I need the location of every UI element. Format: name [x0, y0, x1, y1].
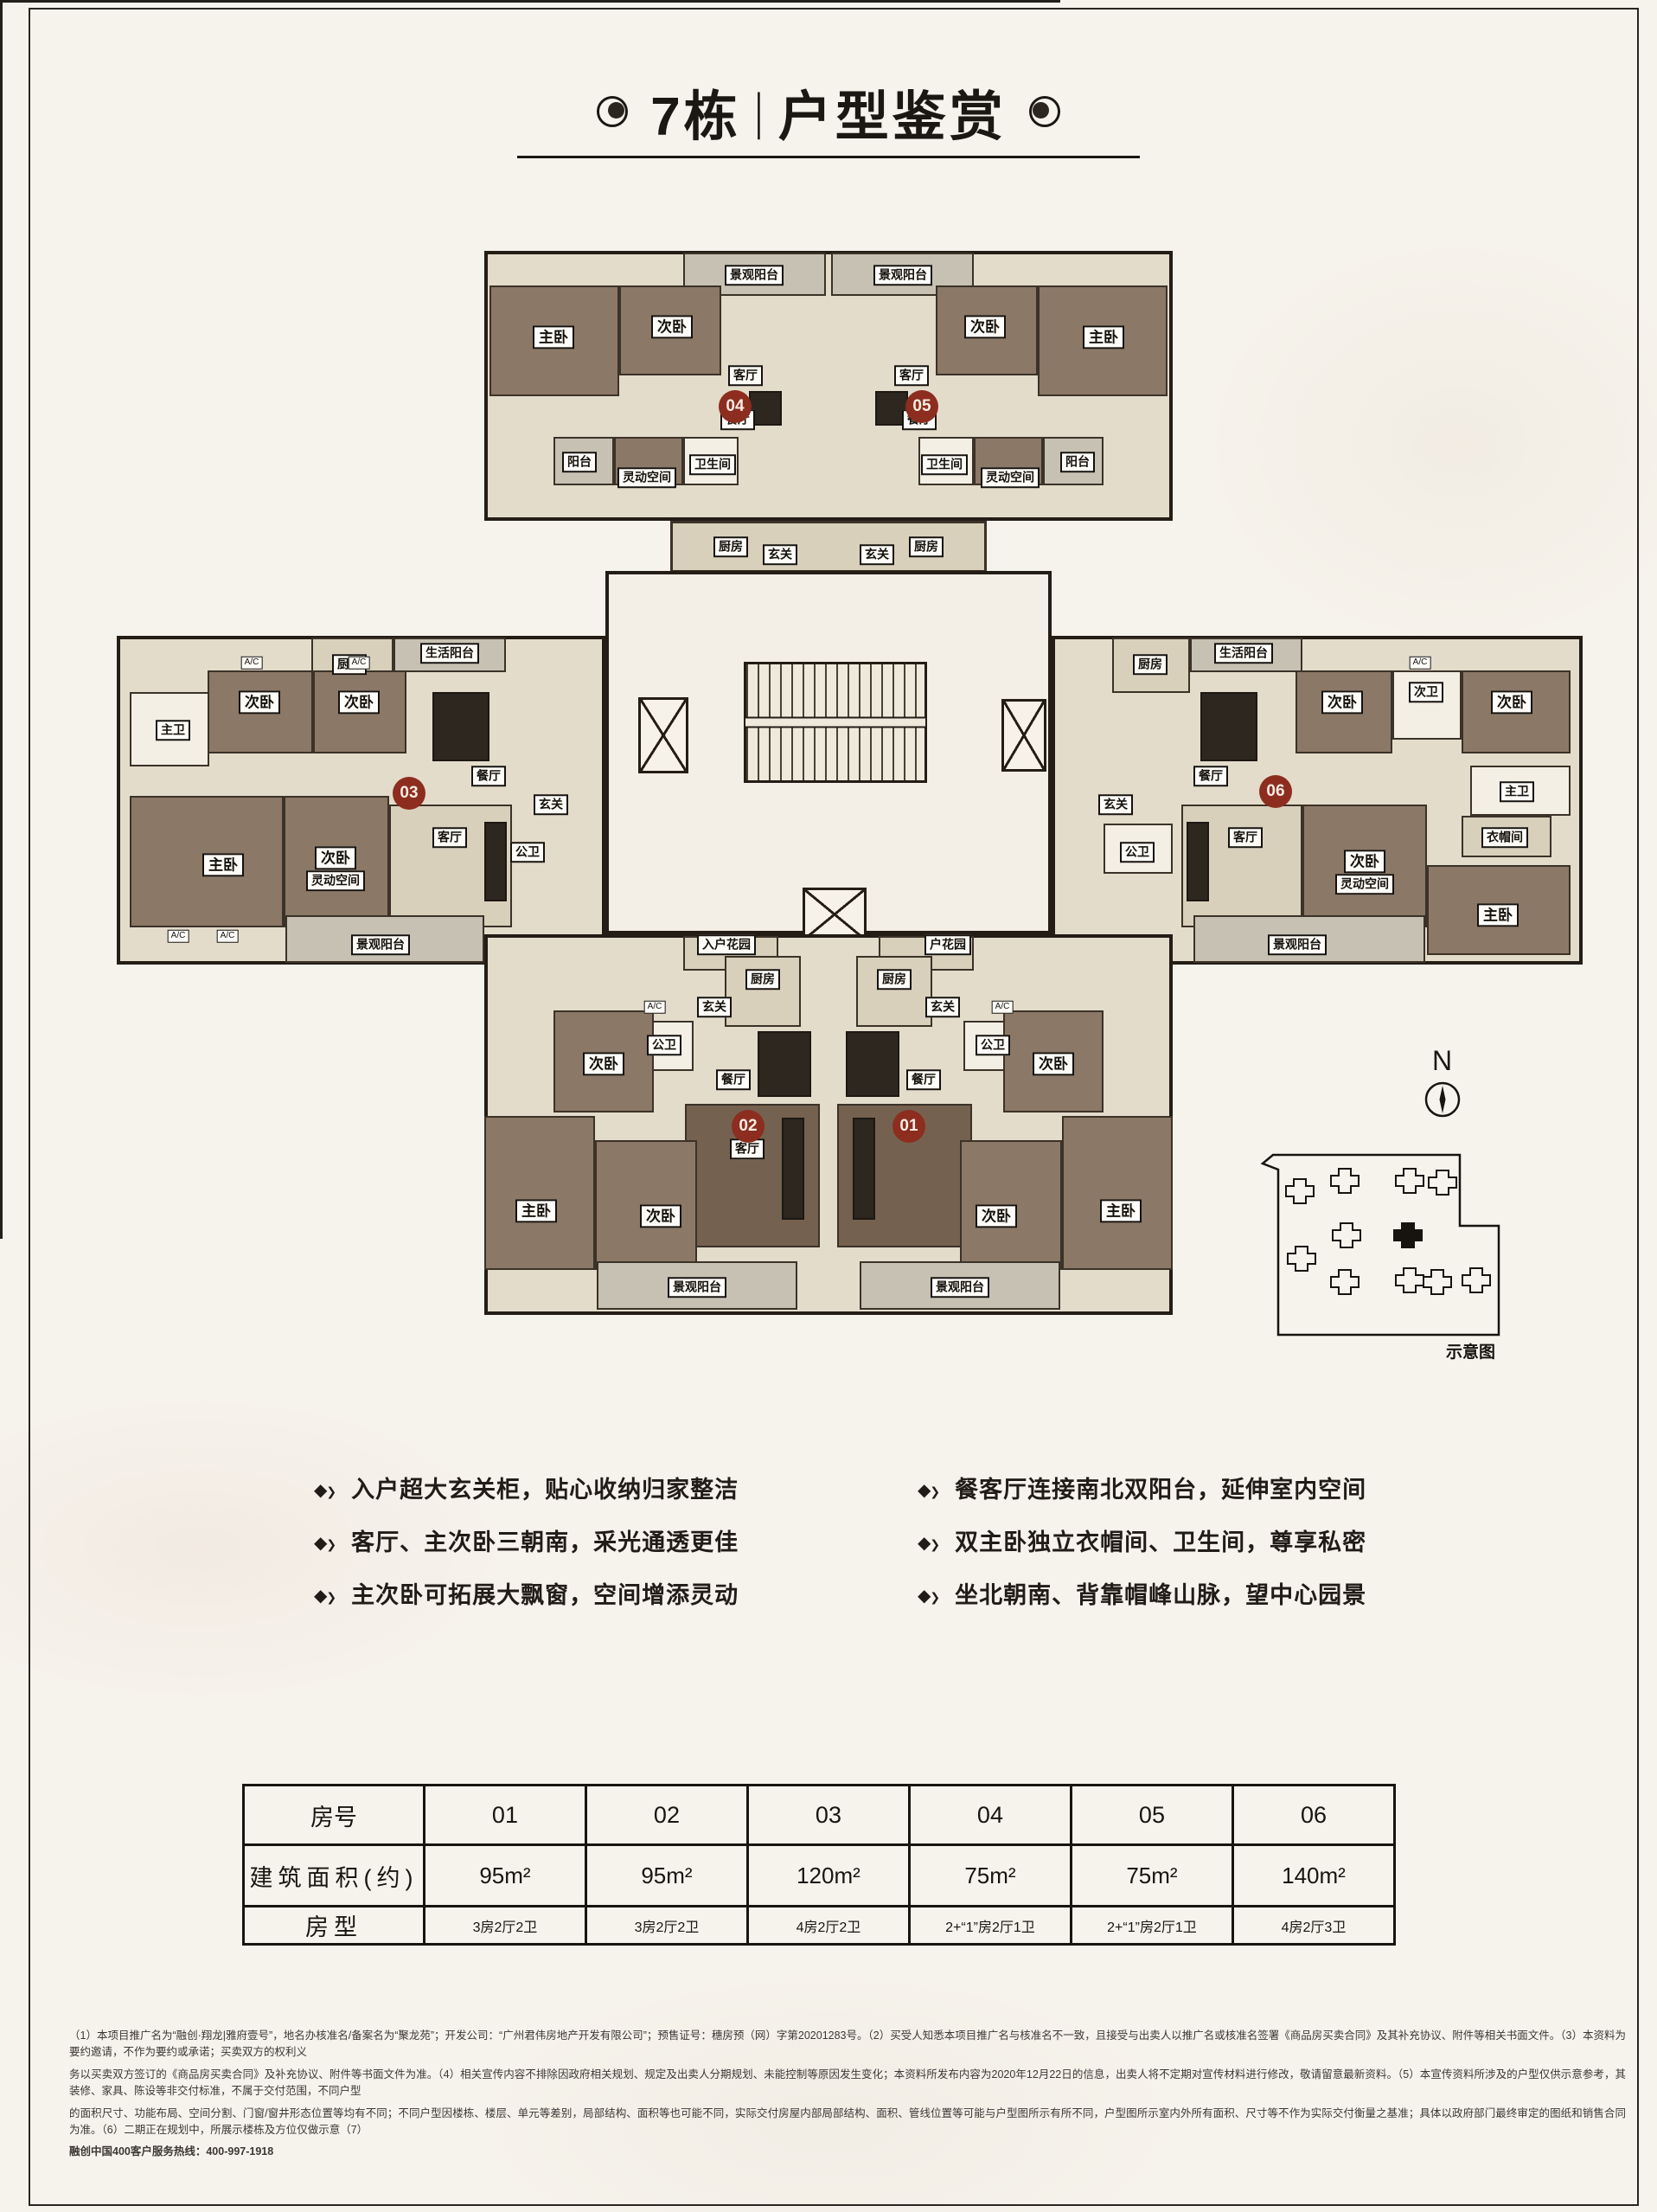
diamond-bullet-icon: [918, 1585, 941, 1606]
room-label-次卧: 次卧: [651, 315, 693, 338]
bedroom-area: [1062, 1116, 1173, 1270]
room-label-灵动空间: 灵动空间: [981, 467, 1040, 488]
room-label-主卧: 主卧: [1100, 1199, 1142, 1222]
room-label-玄关: 玄关: [763, 544, 797, 565]
room-label-卫生间: 卫生间: [921, 454, 968, 475]
room-label-客厅: 客厅: [728, 365, 763, 386]
table-cell: 95m²: [585, 1845, 747, 1907]
feature-text: 入户超大玄关柜，贴心收纳归家整洁: [351, 1471, 739, 1504]
room-label-主卧: 主卧: [515, 1199, 557, 1222]
elevator-shaft: [803, 888, 867, 941]
room-label-生活阳台: 生活阳台: [1214, 643, 1273, 664]
room-label-入户花园: 入户花园: [697, 934, 756, 955]
table-cell: 75m²: [909, 1845, 1071, 1907]
room-label-阳台: 阳台: [562, 452, 597, 472]
room-label-主卫: 主卫: [156, 720, 190, 741]
room-label-景观阳台: 景观阳台: [1268, 934, 1327, 955]
unit-badge-01: 01: [892, 1110, 925, 1143]
room-label-次卧: 次卧: [976, 1204, 1017, 1228]
feature-item: 餐客厅连接南北双阳台，延伸室内空间: [918, 1471, 1366, 1505]
room-label-景观阳台: 景观阳台: [873, 265, 932, 285]
elevator-shaft: [638, 697, 688, 773]
unit-spec-table: 房号010203040506建筑面积(约)95m²95m²120m²75m²75…: [242, 1784, 1396, 1946]
room-label-主卫: 主卫: [1500, 781, 1534, 802]
furniture: [853, 1118, 875, 1220]
site-building: [1429, 1170, 1456, 1195]
furniture: [432, 692, 489, 761]
room-label-公卫: 公卫: [510, 842, 545, 862]
feature-item: 双主卧独立衣帽间、卫生间，尊享私密: [918, 1523, 1366, 1558]
room-label-阳台: 阳台: [1060, 452, 1095, 472]
feature-text: 餐客厅连接南北双阳台，延伸室内空间: [955, 1471, 1366, 1504]
title-subtitle: 户型鉴赏: [778, 73, 1007, 151]
room-label-玄关: 玄关: [860, 544, 894, 565]
site-building: [1333, 1223, 1360, 1247]
room-label-玄关: 玄关: [697, 997, 732, 1017]
furniture: [1187, 822, 1209, 901]
site-building: [1288, 1247, 1315, 1271]
disclaimer-line: （1）本项目推广名为“融创·翔龙|雅府壹号”，地名办核准名/备案名为“聚龙苑”；…: [69, 2028, 1626, 2061]
site-building: [1423, 1270, 1451, 1294]
room-label-厨房: 厨房: [745, 969, 780, 990]
furniture: [484, 822, 507, 901]
room-label-景观阳台: 景观阳台: [931, 1277, 989, 1298]
disclaimer: （1）本项目推广名为“融创·翔龙|雅府壹号”，地名办核准名/备案名为“聚龙苑”；…: [69, 2028, 1626, 2166]
room-label-次卧: 次卧: [1491, 690, 1532, 714]
room-label-厨房: 厨房: [909, 536, 944, 557]
room-label-A/C: A/C: [644, 1001, 666, 1014]
row-header: 建筑面积(约): [244, 1845, 425, 1907]
north-label: N: [1417, 1045, 1468, 1077]
room-label-玄关: 玄关: [925, 997, 960, 1017]
feature-text: 客厅、主次卧三朝南，采光通透更佳: [351, 1523, 739, 1557]
site-building: [1331, 1270, 1359, 1294]
table-cell: 140m²: [1232, 1845, 1394, 1907]
room-label-玄关: 玄关: [534, 794, 568, 815]
site-map-caption: 示意图: [1446, 1339, 1495, 1362]
room-label-次卫: 次卫: [1409, 682, 1443, 702]
table-cell: 2+“1”房2厅1卫: [909, 1907, 1071, 1945]
staircase: [744, 662, 927, 783]
room-label-次卧: 次卧: [239, 690, 280, 714]
unit-badge-06: 06: [1259, 775, 1292, 808]
room-label-主卧: 主卧: [1083, 325, 1124, 349]
room-label-卫生间: 卫生间: [689, 454, 736, 475]
room-label-餐厅: 餐厅: [716, 1069, 751, 1090]
furniture: [846, 1031, 899, 1097]
room-label-公卫: 公卫: [647, 1035, 681, 1055]
room-label-灵动空间: 灵动空间: [617, 467, 676, 488]
feature-item: 主次卧可拓展大飘窗，空间增添灵动: [314, 1576, 739, 1611]
room-label-次卧: 次卧: [640, 1204, 681, 1228]
disclaimer-line: 务以买卖双方签订的《商品房买卖合同》及补充协议、附件等书面文件为准。（4）相关宣…: [69, 2067, 1626, 2100]
room-label-次卧: 次卧: [1344, 850, 1385, 873]
site-building: [1462, 1268, 1490, 1292]
room-label-主卧: 主卧: [1477, 903, 1519, 926]
row-header: 房号: [244, 1786, 425, 1845]
room-label-次卧: 次卧: [964, 315, 1006, 338]
diamond-bullet-icon: [918, 1532, 941, 1554]
feature-item: 坐北朝南、背靠帽峰山脉，望中心园景: [918, 1576, 1366, 1611]
site-building: [1396, 1169, 1423, 1193]
title-divider: |: [755, 83, 764, 141]
site-building-highlighted: [1394, 1223, 1422, 1247]
unit-badge-04: 04: [719, 390, 752, 423]
moon-ornament-icon: [1029, 96, 1060, 127]
diamond-bullet-icon: [314, 1479, 337, 1501]
room-label-景观阳台: 景观阳台: [725, 265, 784, 285]
table-cell: 05: [1071, 1786, 1232, 1845]
room-label-灵动空间: 灵动空间: [306, 870, 365, 891]
service-hotline: 融创中国400客户服务热线：400-997-1918: [69, 2144, 1626, 2160]
row-header: 房型: [244, 1907, 425, 1945]
room-label-主卧: 主卧: [533, 325, 574, 349]
feature-text: 坐北朝南、背靠帽峰山脉，望中心园景: [955, 1576, 1366, 1610]
room-label-A/C: A/C: [168, 930, 189, 943]
disclaimer-line: 的面积尺寸、功能布局、空间分割、门窗/窗井形态位置等均有不同；不同户型因楼栋、楼…: [69, 2106, 1626, 2139]
feature-item: 入户超大玄关柜，贴心收纳归家整洁: [314, 1471, 739, 1505]
room-label-主卧: 主卧: [202, 853, 244, 876]
room-label-衣帽间: 衣帽间: [1481, 827, 1528, 848]
room-label-厨房: 厨房: [877, 969, 912, 990]
room-label-A/C: A/C: [217, 930, 239, 943]
table-cell: 04: [909, 1786, 1071, 1845]
diamond-bullet-icon: [314, 1585, 337, 1606]
table-cell: 02: [585, 1786, 747, 1845]
feature-item: 客厅、主次卧三朝南，采光通透更佳: [314, 1523, 739, 1558]
room-label-户花园: 户花园: [924, 934, 971, 955]
unit-badge-02: 02: [732, 1110, 765, 1143]
table-row: 房型3房2厅2卫3房2厅2卫4房2厅2卫2+“1”房2厅1卫2+“1”房2厅1卫…: [244, 1907, 1395, 1945]
scan-edge-left: [0, 0, 3, 1239]
room-label-餐厅: 餐厅: [1193, 766, 1228, 786]
building-number: 7栋: [650, 73, 740, 151]
room-label-次卧: 次卧: [338, 690, 380, 714]
kitchen-area: [856, 956, 932, 1027]
site-building: [1286, 1179, 1314, 1203]
table-cell: 120m²: [747, 1845, 909, 1907]
room-label-客厅: 客厅: [1228, 827, 1263, 848]
furniture: [782, 1118, 804, 1220]
room-label-次卧: 次卧: [1033, 1052, 1074, 1075]
feature-list-left: 入户超大玄关柜，贴心收纳归家整洁客厅、主次卧三朝南，采光通透更佳主次卧可拓展大飘…: [314, 1471, 739, 1629]
site-building: [1396, 1268, 1423, 1292]
room-label-景观阳台: 景观阳台: [668, 1277, 726, 1298]
table-cell: 3房2厅2卫: [424, 1907, 585, 1945]
room-label-厨房: 厨房: [713, 536, 748, 557]
room-label-厨房: 厨房: [1133, 654, 1168, 675]
room-label-公卫: 公卫: [976, 1035, 1010, 1055]
table-cell: 95m²: [424, 1845, 585, 1907]
site-map: [1256, 1149, 1508, 1343]
room-label-玄关: 玄关: [1098, 794, 1133, 815]
room-label-客厅: 客厅: [894, 365, 929, 386]
room-label-生活阳台: 生活阳台: [420, 643, 479, 664]
room-label-客厅: 客厅: [432, 827, 467, 848]
room-label-A/C: A/C: [349, 657, 370, 670]
table-cell: 3房2厅2卫: [585, 1907, 747, 1945]
room-label-公卫: 公卫: [1120, 842, 1155, 862]
page-header: 7栋 | 户型鉴赏: [0, 73, 1657, 151]
table-cell: 01: [424, 1786, 585, 1845]
table-cell: 03: [747, 1786, 909, 1845]
diamond-bullet-icon: [314, 1532, 337, 1554]
brochure-page: 7栋 | 户型鉴赏: [0, 0, 1657, 2212]
room-label-次卧: 次卧: [1321, 690, 1363, 714]
compass-icon: [1422, 1079, 1463, 1120]
room-label-餐厅: 餐厅: [906, 1069, 941, 1090]
room-label-A/C: A/C: [241, 657, 263, 670]
table-row: 房号010203040506: [244, 1786, 1395, 1845]
bedroom-area: [484, 1116, 595, 1270]
moon-ornament-icon: [597, 96, 628, 127]
unit-badge-05: 05: [905, 390, 938, 423]
table-cell: 2+“1”房2厅1卫: [1071, 1907, 1232, 1945]
site-building: [1331, 1169, 1359, 1193]
room-label-景观阳台: 景观阳台: [351, 934, 410, 955]
table-cell: 4房2厅3卫: [1232, 1907, 1394, 1945]
scan-edge-top: [0, 0, 1060, 3]
table-cell: 75m²: [1071, 1845, 1232, 1907]
furniture: [1200, 692, 1257, 761]
table-row: 建筑面积(约)95m²95m²120m²75m²75m²140m²: [244, 1845, 1395, 1907]
table-cell: 06: [1232, 1786, 1394, 1845]
room-label-A/C: A/C: [992, 1001, 1014, 1014]
elevator-shaft: [1001, 699, 1046, 772]
feature-text: 双主卧独立衣帽间、卫生间，尊享私密: [955, 1523, 1366, 1557]
room-label-餐厅: 餐厅: [471, 766, 506, 786]
title-underline: [517, 156, 1140, 158]
table-cell: 4房2厅2卫: [747, 1907, 909, 1945]
feature-text: 主次卧可拓展大飘窗，空间增添灵动: [351, 1576, 739, 1610]
kitchen-area: [725, 956, 801, 1027]
page-title: 7栋 | 户型鉴赏: [650, 73, 1007, 151]
room-label-次卧: 次卧: [315, 846, 356, 869]
room-label-灵动空间: 灵动空间: [1335, 874, 1394, 894]
furniture: [758, 1031, 811, 1097]
bathroom-area: [1392, 670, 1462, 740]
feature-list-right: 餐客厅连接南北双阳台，延伸室内空间双主卧独立衣帽间、卫生间，尊享私密坐北朝南、背…: [918, 1471, 1366, 1629]
diamond-bullet-icon: [918, 1479, 941, 1501]
room-label-次卧: 次卧: [583, 1052, 624, 1075]
room-label-A/C: A/C: [1410, 657, 1431, 670]
unit-badge-03: 03: [393, 777, 425, 810]
north-compass: N: [1417, 1045, 1468, 1125]
